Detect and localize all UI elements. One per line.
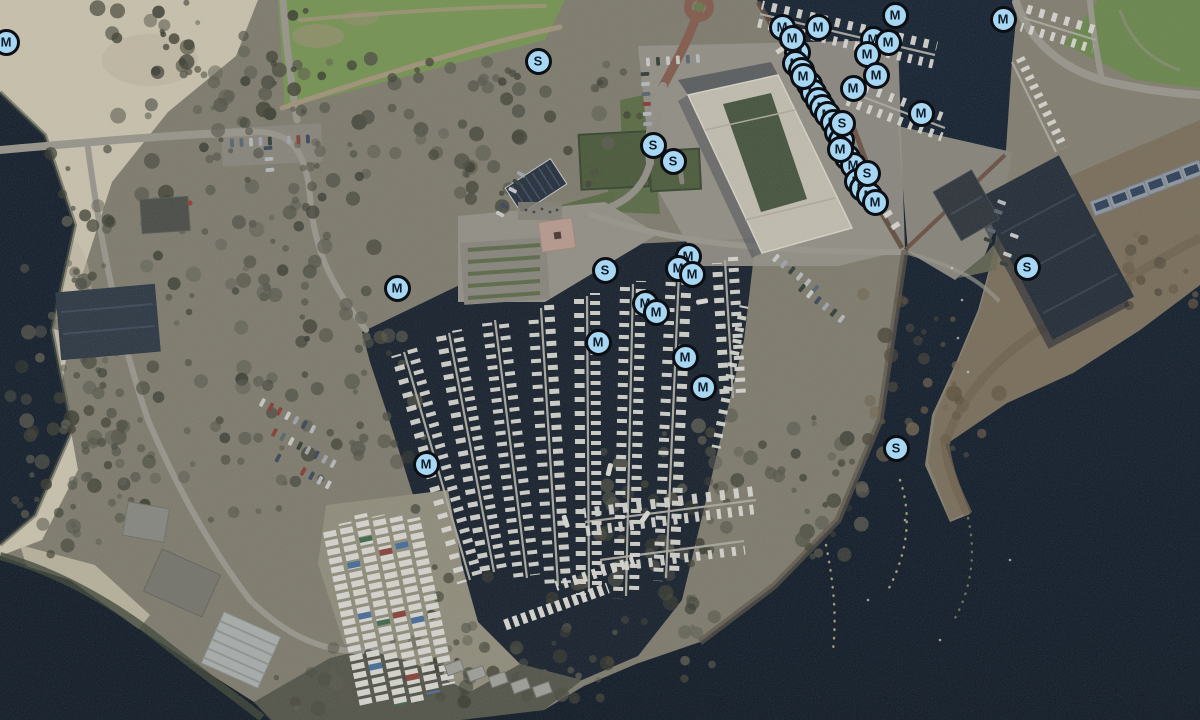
map-marker-m[interactable]: M [805,14,832,41]
map-marker-m[interactable]: M [908,100,935,127]
marker-letter: S [669,154,678,167]
marker-letter: M [1,35,12,48]
map-marker-m[interactable]: M [413,451,440,478]
marker-letter: S [838,116,847,129]
marker-letter: M [392,281,403,294]
marker-letter: M [651,305,662,318]
map-marker-m[interactable]: M [827,136,854,163]
map-marker-m[interactable]: M [384,275,411,302]
marker-letter: M [835,142,846,155]
marker-letter: M [687,267,698,280]
map-marker-m[interactable]: M [0,29,20,56]
marker-letter: S [601,263,610,276]
map-marker-m[interactable]: M [672,344,699,371]
marker-letter: M [813,20,824,33]
map-marker-m[interactable]: M [643,299,670,326]
marker-letter: M [421,457,432,470]
map-marker-s[interactable]: S [592,257,619,284]
marker-layer: MMMMMMMMMMMMMMMMMSSSMMMMMMMMMMMSMSMMSMSM… [0,0,1200,720]
map-marker-s[interactable]: S [1014,254,1041,281]
marker-letter: M [862,47,873,60]
marker-letter: M [890,8,901,21]
map-marker-s[interactable]: S [660,148,687,175]
marker-letter: M [593,335,604,348]
marker-letter: M [787,31,798,44]
map-marker-m[interactable]: M [690,374,717,401]
map-marker-m[interactable]: M [840,75,867,102]
marker-letter: M [998,12,1009,25]
marker-letter: M [871,68,882,81]
map-marker-m[interactable]: M [882,2,909,29]
marker-letter: S [1023,260,1032,273]
map-marker-m[interactable]: M [779,25,806,52]
marker-letter: M [698,380,709,393]
marker-letter: S [863,166,872,179]
map-marker-s[interactable]: S [525,48,552,75]
map-canvas[interactable]: MMMMMMMMMMMMMMMMMSSSMMMMMMMMMMMSMSMMSMSM… [0,0,1200,720]
map-marker-s[interactable]: S [854,160,881,187]
marker-letter: S [534,54,543,67]
map-marker-m[interactable]: M [863,62,890,89]
map-marker-m[interactable]: M [990,6,1017,33]
map-marker-s[interactable]: S [829,110,856,137]
map-marker-m[interactable]: M [862,189,889,216]
marker-letter: M [680,350,691,363]
map-marker-m[interactable]: M [790,63,817,90]
marker-letter: M [848,81,859,94]
map-marker-m[interactable]: M [679,261,706,288]
map-marker-s[interactable]: S [883,435,910,462]
map-marker-m[interactable]: M [585,329,612,356]
marker-letter: M [883,35,894,48]
marker-letter: M [798,69,809,82]
marker-letter: S [892,441,901,454]
marker-letter: M [870,195,881,208]
marker-letter: S [649,138,658,151]
marker-letter: M [916,106,927,119]
